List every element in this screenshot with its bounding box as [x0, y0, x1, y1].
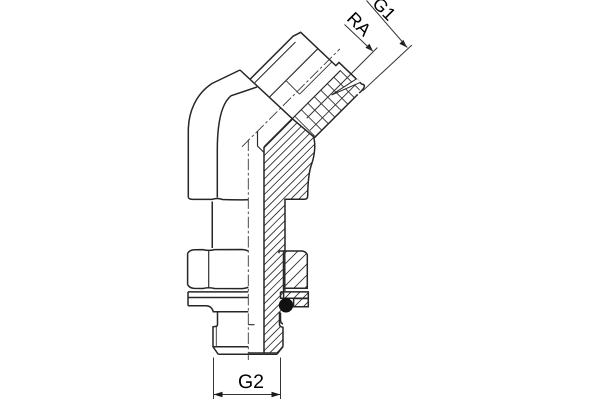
svg-text:G2: G2: [238, 371, 264, 393]
svg-text:RA: RA: [343, 8, 375, 40]
